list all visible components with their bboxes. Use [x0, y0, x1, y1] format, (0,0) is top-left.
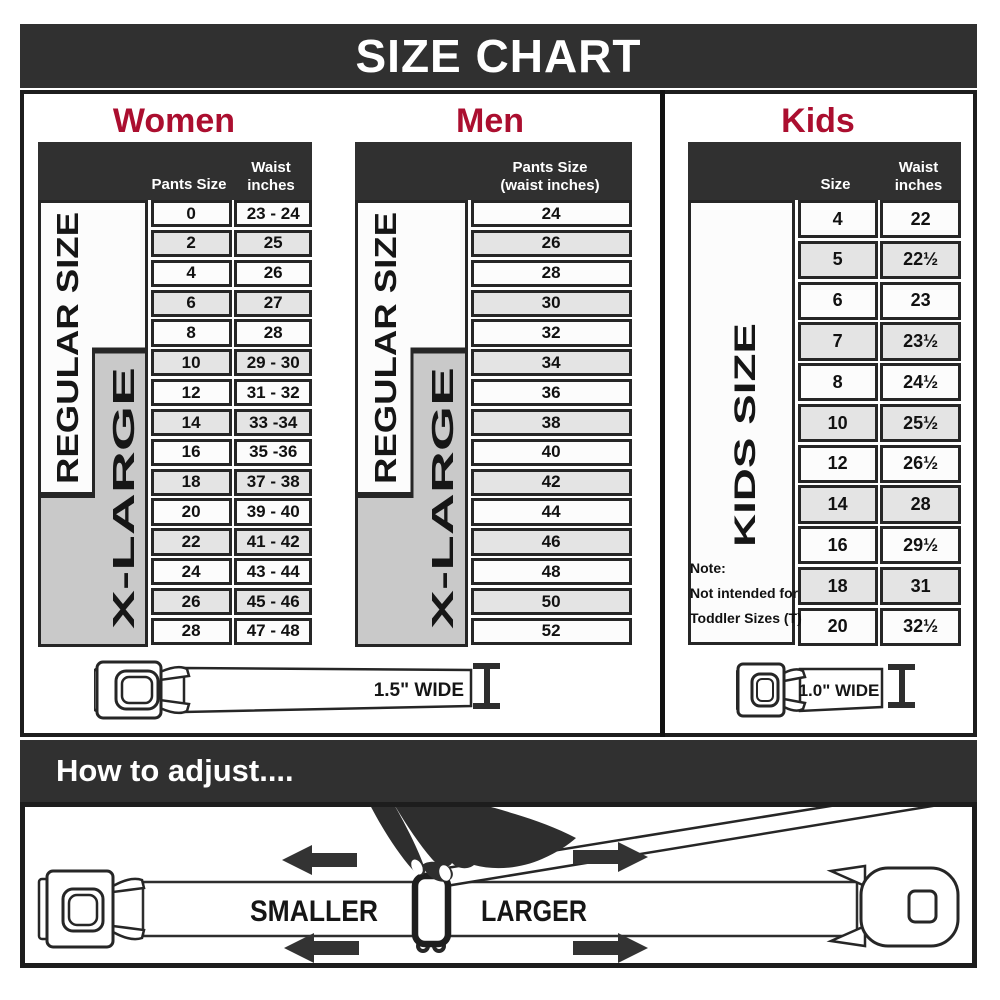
table-row: 26 — [471, 230, 632, 257]
table-row: 1433 -34 — [151, 409, 313, 436]
belt-adjuster — [415, 876, 448, 951]
women-col-pants-size: Pants Size — [146, 176, 232, 195]
kids-table-rows: 422522½623723½824½1025½1226½14281629½183… — [798, 200, 962, 646]
kids-section-heading: Kids — [664, 102, 972, 141]
table-cell-size: 24 — [471, 200, 632, 227]
table-cell-waist: 23 — [880, 282, 961, 320]
table-cell-size: 14 — [151, 409, 232, 436]
kids-table-header: Size Waist inches — [688, 142, 961, 200]
table-cell-size: 28 — [471, 260, 632, 287]
table-cell-waist: 28 — [234, 319, 312, 346]
adult-belt-width-label: 1.5" WIDE — [374, 680, 464, 701]
buckle-window — [122, 677, 152, 703]
men-table-header: Pants Size (waist inches) — [355, 142, 632, 200]
table-cell-size: 0 — [151, 200, 232, 227]
table-cell-waist: 28 — [880, 485, 961, 523]
table-row: 34 — [471, 349, 632, 376]
table-cell-waist: 22 — [880, 200, 961, 238]
kids-note-line1: Note: — [690, 556, 822, 581]
kids-belt-width-label: 1.0" WIDE — [799, 681, 880, 700]
table-cell-waist: 23 - 24 — [234, 200, 312, 227]
table-cell-waist: 23½ — [880, 322, 961, 360]
table-row: 828 — [151, 319, 313, 346]
table-row: 38 — [471, 409, 632, 436]
table-row: 1837 - 38 — [151, 469, 313, 496]
table-row: 32 — [471, 319, 632, 346]
table-row: 52 — [471, 618, 632, 645]
men-x-large-label: X-LARGE — [425, 367, 460, 629]
larger-label: LARGER — [481, 895, 587, 928]
how-to-adjust-heading: How to adjust.... — [56, 753, 294, 789]
how-to-adjust-bar: How to adjust.... — [20, 740, 977, 802]
men-table-rows: 242628303234363840424446485052 — [471, 200, 632, 645]
women-col-waist: Waist inches — [230, 159, 312, 197]
men-col-header-line2: (waist inches) — [468, 177, 632, 196]
table-cell-size: 6 — [151, 290, 232, 317]
table-row: 723½ — [798, 322, 962, 360]
table-row: 023 - 24 — [151, 200, 313, 227]
table-row: 1231 - 32 — [151, 379, 313, 406]
table-row: 426 — [151, 260, 313, 287]
table-cell-waist: 31 - 32 — [234, 379, 312, 406]
table-cell-waist: 31 — [880, 567, 961, 605]
table-row: 30 — [471, 290, 632, 317]
adult-belt-illustration: 1.5" WIDE — [94, 655, 504, 720]
table-cell-size: 12 — [798, 445, 878, 483]
table-cell-size: 16 — [151, 439, 232, 466]
kids-col-waist-line1: Waist — [876, 159, 961, 178]
table-cell-waist: 35 -36 — [234, 439, 312, 466]
table-row: 2032½ — [798, 608, 962, 646]
table-cell-waist: 33 -34 — [234, 409, 312, 436]
women-table-rows: 023 - 242254266278281029 - 301231 - 3214… — [151, 200, 313, 645]
table-row: 1428 — [798, 485, 962, 523]
kids-note-line2: Not intended for — [690, 581, 822, 606]
table-cell-size: 5 — [798, 241, 878, 279]
table-cell-size: 4 — [798, 200, 878, 238]
table-cell-waist: 29½ — [880, 526, 961, 564]
table-cell-size: 36 — [471, 379, 632, 406]
table-row: 1831 — [798, 567, 962, 605]
width-measure-icon — [473, 663, 500, 709]
table-cell-size: 52 — [471, 618, 632, 645]
table-cell-waist: 45 - 46 — [234, 588, 312, 615]
men-col-pants-size: Pants Size (waist inches) — [468, 159, 632, 197]
kids-size-label: KIDS SIZE — [729, 323, 762, 547]
table-row: 422 — [798, 200, 962, 238]
table-cell-waist: 26 — [234, 260, 312, 287]
table-cell-size: 14 — [798, 485, 878, 523]
women-size-table: Pants Size Waist inches REGULAR SIZE X-L… — [38, 142, 312, 647]
table-row: 1629½ — [798, 526, 962, 564]
table-cell-size: 8 — [798, 363, 878, 401]
table-cell-size: 32 — [471, 319, 632, 346]
table-cell-size: 44 — [471, 498, 632, 525]
table-cell-size: 8 — [151, 319, 232, 346]
smaller-label: SMALLER — [250, 895, 378, 928]
table-cell-size: 26 — [151, 588, 232, 615]
table-cell-waist: 37 - 38 — [234, 469, 312, 496]
women-table-header: Pants Size Waist inches — [38, 142, 312, 200]
table-cell-size: 46 — [471, 528, 632, 555]
section-divider — [660, 90, 665, 737]
table-row: 824½ — [798, 363, 962, 401]
table-cell-waist: 43 - 44 — [234, 558, 312, 585]
table-row: 48 — [471, 558, 632, 585]
women-col-waist-line2: inches — [230, 177, 312, 196]
kids-note: Note: Not intended for Toddler Sizes (T) — [690, 556, 822, 632]
table-cell-size: 38 — [471, 409, 632, 436]
table-cell-size: 12 — [151, 379, 232, 406]
table-cell-waist: 25 — [234, 230, 312, 257]
women-size-group-labels: REGULAR SIZE X-LARGE — [38, 200, 148, 647]
men-section-heading: Men — [354, 102, 626, 141]
table-cell-size: 22 — [151, 528, 232, 555]
table-row: 1029 - 30 — [151, 349, 313, 376]
arrow-right-icon — [573, 933, 648, 963]
adjustment-illustration-panel: SMALLER LARGER — [20, 802, 977, 968]
table-cell-size: 40 — [471, 439, 632, 466]
table-cell-waist: 47 - 48 — [234, 618, 312, 645]
table-cell-size: 20 — [151, 498, 232, 525]
table-cell-size: 34 — [471, 349, 632, 376]
table-row: 2241 - 42 — [151, 528, 313, 555]
table-row: 44 — [471, 498, 632, 525]
table-row: 627 — [151, 290, 313, 317]
table-cell-size: 48 — [471, 558, 632, 585]
table-cell-waist: 29 - 30 — [234, 349, 312, 376]
table-cell-waist: 25½ — [880, 404, 961, 442]
men-size-group-labels: REGULAR SIZE X-LARGE — [355, 200, 468, 647]
width-measure-icon — [888, 664, 915, 708]
table-cell-size: 2 — [151, 230, 232, 257]
table-cell-size: 42 — [471, 469, 632, 496]
table-row: 623 — [798, 282, 962, 320]
table-cell-waist: 26½ — [880, 445, 961, 483]
table-row: 2645 - 46 — [151, 588, 313, 615]
table-row: 28 — [471, 260, 632, 287]
kids-col-waist-line2: inches — [876, 177, 961, 196]
table-cell-waist: 22½ — [880, 241, 961, 279]
table-cell-size: 7 — [798, 322, 878, 360]
table-cell-waist: 27 — [234, 290, 312, 317]
page-title: SIZE CHART — [356, 29, 642, 83]
arrow-left-icon — [284, 933, 359, 963]
table-row: 2443 - 44 — [151, 558, 313, 585]
table-row: 24 — [471, 200, 632, 227]
table-cell-size: 10 — [798, 404, 878, 442]
men-size-table: Pants Size (waist inches) REGULAR SIZE X… — [355, 142, 632, 647]
men-col-header-line1: Pants Size — [468, 159, 632, 178]
table-cell-waist: 39 - 40 — [234, 498, 312, 525]
table-row: 46 — [471, 528, 632, 555]
adjustment-illustration: SMALLER LARGER — [25, 807, 972, 963]
table-cell-size: 30 — [471, 290, 632, 317]
kids-belt-illustration: 1.0" WIDE — [736, 655, 926, 720]
table-cell-size: 24 — [151, 558, 232, 585]
women-col-waist-line1: Waist — [230, 159, 312, 178]
kids-col-waist: Waist inches — [876, 159, 961, 197]
kids-col-size: Size — [793, 176, 878, 195]
table-cell-size: 50 — [471, 588, 632, 615]
table-cell-size: 10 — [151, 349, 232, 376]
table-cell-size: 28 — [151, 618, 232, 645]
table-cell-waist: 41 - 42 — [234, 528, 312, 555]
table-row: 1635 -36 — [151, 439, 313, 466]
buckle-window — [757, 679, 773, 701]
table-row: 50 — [471, 588, 632, 615]
table-row: 2039 - 40 — [151, 498, 313, 525]
women-section-heading: Women — [24, 102, 324, 141]
table-row: 36 — [471, 379, 632, 406]
table-row: 522½ — [798, 241, 962, 279]
table-cell-size: 4 — [151, 260, 232, 287]
arrow-left-icon — [282, 845, 357, 875]
women-x-large-label: X-LARGE — [106, 367, 141, 629]
size-chart-banner: SIZE CHART — [20, 24, 977, 88]
size-tables-panel: Women Men Kids Pants Size Waist inches R… — [20, 90, 977, 737]
table-cell-size: 26 — [471, 230, 632, 257]
table-row: 40 — [471, 439, 632, 466]
table-row: 1226½ — [798, 445, 962, 483]
table-row: 42 — [471, 469, 632, 496]
men-regular-size-label: REGULAR SIZE — [368, 212, 403, 484]
kids-note-line3: Toddler Sizes (T) — [690, 606, 822, 631]
seatbelt-buckle-icon — [39, 871, 144, 947]
table-cell-waist: 32½ — [880, 608, 961, 646]
table-row: 1025½ — [798, 404, 962, 442]
table-cell-size: 6 — [798, 282, 878, 320]
table-row: 2847 - 48 — [151, 618, 313, 645]
women-regular-size-label: REGULAR SIZE — [50, 212, 85, 484]
table-cell-waist: 24½ — [880, 363, 961, 401]
table-row: 225 — [151, 230, 313, 257]
table-cell-size: 18 — [151, 469, 232, 496]
